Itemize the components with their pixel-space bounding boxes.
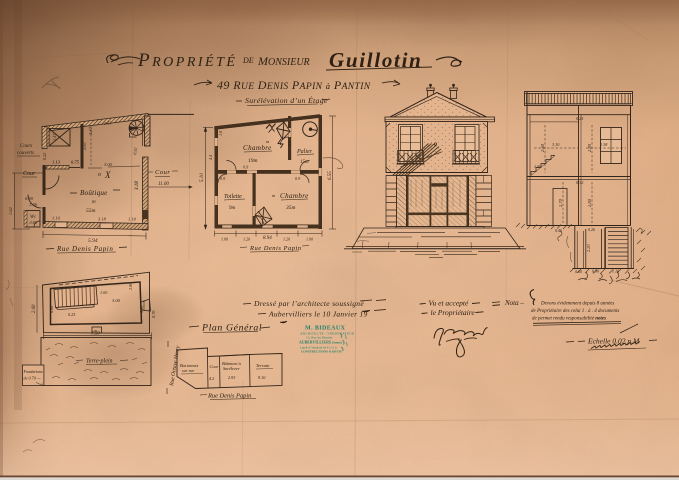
svg-text:2.00: 2.00: [128, 282, 133, 290]
svg-text:Aubervilliers le 10 Janvier 19: Aubervilliers le 10 Janvier 19: [268, 310, 368, 319]
svg-text:Rue Denis Papin: Rue Denis Papin: [56, 245, 113, 253]
svg-text:1.0: 1.0: [218, 130, 223, 136]
svg-text:0.26: 0.26: [588, 227, 595, 232]
svg-text:le Propriétaire: le Propriétaire: [431, 308, 476, 317]
svg-text:9m: 9m: [229, 206, 236, 211]
svg-text:9.10: 9.10: [258, 375, 266, 380]
svg-text:2.80: 2.80: [587, 143, 592, 152]
svg-text:MONSIEUR: MONSIEUR: [257, 54, 310, 68]
svg-text:2.60: 2.60: [32, 304, 37, 313]
svg-text:2.80: 2.80: [587, 198, 592, 207]
svg-text:Fondations: Fondations: [23, 369, 43, 374]
svg-text:AUBERVILLIERS (Seine): AUBERVILLIERS (Seine): [299, 341, 342, 345]
svg-text:CONSTRUCTIONS & DEVIS: CONSTRUCTIONS & DEVIS: [301, 350, 342, 354]
svg-text:de Propriétaire des celui 1 .: de Propriétaire des celui 1 . à . 4 docu…: [531, 309, 619, 314]
svg-text:1.00: 1.00: [306, 237, 313, 242]
svg-text:2.51: 2.51: [104, 120, 112, 126]
svg-text:3.18: 3.18: [98, 217, 107, 222]
svg-text:0.80: 0.80: [49, 305, 54, 313]
svg-text:Dressé par l’architecte soussi: Dressé par l’architecte soussigné: [253, 299, 364, 308]
svg-text:0.90: 0.90: [25, 196, 34, 201]
svg-text:1.62: 1.62: [8, 206, 13, 215]
svg-text:4.47: 4.47: [88, 126, 93, 135]
svg-text:2.70: 2.70: [558, 198, 563, 207]
svg-text:1.00: 1.00: [534, 164, 541, 169]
svg-text:4.2: 4.2: [209, 376, 214, 381]
svg-text:X: X: [104, 170, 111, 180]
svg-text:2.38: 2.38: [600, 142, 608, 147]
svg-text:3.00: 3.00: [112, 298, 121, 303]
svg-text:6.55: 6.55: [328, 171, 333, 180]
svg-text:1.13: 1.13: [52, 160, 61, 165]
svg-text:0.25: 0.25: [68, 312, 75, 317]
svg-text:3.18: 3.18: [135, 181, 140, 190]
svg-text:m: m: [92, 200, 96, 205]
svg-text:2.93: 2.93: [228, 375, 235, 380]
svg-text:Terre-plein: Terre-plein: [86, 359, 113, 365]
svg-text:Rue Denis Papin: Rue Denis Papin: [207, 393, 251, 400]
svg-text:Vu et accepté: Vu et accepté: [429, 299, 470, 308]
svg-text:1.20: 1.20: [283, 237, 290, 242]
svg-text:35m: 35m: [285, 205, 296, 211]
svg-text:Cour: Cour: [155, 169, 170, 176]
svg-text:0.60: 0.60: [575, 269, 582, 274]
svg-text:Surélévation d’un Étage: Surélévation d’un Étage: [245, 95, 328, 105]
svg-text:1.10: 1.10: [52, 216, 61, 221]
svg-text:2.20: 2.20: [586, 244, 591, 252]
svg-text:2.67: 2.67: [82, 141, 87, 150]
svg-text:0.90: 0.90: [592, 269, 599, 274]
svg-text:11.00: 11.00: [158, 182, 169, 187]
svg-text:0.60: 0.60: [139, 305, 144, 313]
svg-text:0.9: 0.9: [243, 165, 249, 170]
svg-text:3.00: 3.00: [104, 162, 113, 167]
svg-text:0.8: 0.8: [287, 140, 292, 146]
svg-text:DE: DE: [242, 56, 254, 65]
svg-text:19m: 19m: [248, 158, 258, 164]
svg-text:0.75: 0.75: [71, 160, 80, 165]
svg-text:Chambre: Chambre: [243, 144, 272, 152]
svg-text:2.60: 2.60: [540, 143, 545, 152]
svg-text:sur rue: sur rue: [182, 368, 194, 373]
svg-text:7.50: 7.50: [91, 332, 100, 337]
svg-text:de permet rendu responsabilité: de permet rendu responsabilité notes: [532, 317, 606, 322]
svg-text:0.22: 0.22: [42, 153, 47, 160]
svg-text:0.25: 0.25: [576, 116, 583, 121]
svg-text:55m: 55m: [86, 208, 96, 214]
svg-text:1.20: 1.20: [243, 237, 250, 242]
svg-text:0.9: 0.9: [220, 176, 226, 181]
svg-text:o: o: [98, 172, 101, 178]
svg-text:8.94: 8.94: [263, 236, 272, 241]
svg-text:0.32: 0.32: [576, 180, 583, 185]
svg-text:0.70: 0.70: [151, 310, 156, 318]
svg-text:1.10: 1.10: [128, 217, 137, 222]
svg-text:3.10: 3.10: [552, 142, 560, 147]
svg-text:couverts: couverts: [17, 151, 34, 156]
svg-text:Terrain: Terrain: [256, 363, 270, 368]
svg-text:Devons évidemment depuis 8 ann: Devons évidemment depuis 8 années: [540, 302, 614, 307]
svg-text:Surélever: Surélever: [223, 366, 240, 371]
svg-text:0.9: 0.9: [295, 176, 301, 181]
svg-text:Cours: Cours: [20, 144, 32, 149]
svg-text:Boûtique: Boûtique: [80, 189, 108, 197]
svg-text:4.4: 4.4: [208, 155, 213, 160]
svg-text:0.46: 0.46: [555, 228, 562, 233]
svg-text:1.00: 1.00: [221, 237, 228, 242]
svg-text:1.00: 1.00: [100, 290, 108, 295]
svg-text:Cour: Cour: [210, 364, 219, 369]
svg-text:Nota –: Nota –: [504, 299, 524, 307]
svg-text:5.10: 5.10: [200, 173, 205, 182]
svg-text:Cour: Cour: [23, 171, 36, 177]
svg-text:5.94: 5.94: [88, 237, 98, 244]
svg-text:Chambre: Chambre: [280, 192, 309, 200]
svg-text:1.47: 1.47: [52, 133, 57, 141]
svg-text:de 0.70 —: de 0.70 —: [24, 376, 41, 381]
svg-text:1.46: 1.46: [29, 202, 38, 207]
